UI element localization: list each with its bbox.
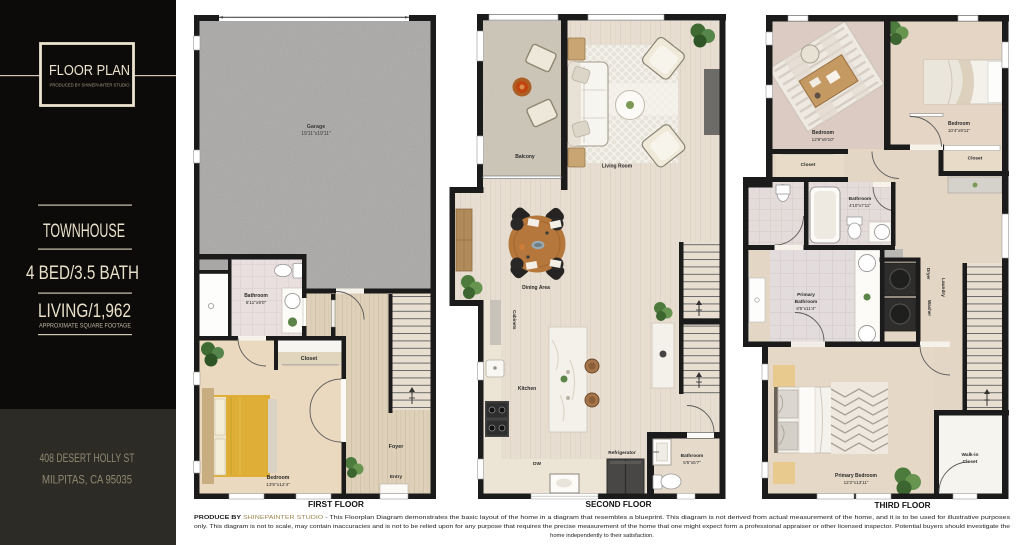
svg-text:6'11"x9'0": 6'11"x9'0": [246, 300, 267, 306]
svg-text:APPROXIMATE SQUARE FOOTAGE: APPROXIMATE SQUARE FOOTAGE: [39, 323, 132, 330]
svg-text:Walk-in: Walk-in: [962, 452, 979, 458]
svg-text:Living Room: Living Room: [602, 164, 633, 170]
svg-text:Bedroom: Bedroom: [948, 121, 971, 127]
svg-text:Closet: Closet: [801, 162, 816, 168]
svg-text:Bathroom: Bathroom: [849, 196, 872, 202]
svg-text:19'11"x19'11": 19'11"x19'11": [301, 131, 331, 137]
svg-text:Foyer: Foyer: [389, 444, 405, 450]
svg-text:Cabinets: Cabinets: [512, 310, 517, 330]
svg-text:FLOOR PLAN: FLOOR PLAN: [49, 62, 130, 79]
svg-text:Garage: Garage: [307, 124, 326, 130]
svg-text:Refrigerator: Refrigerator: [608, 450, 636, 456]
svg-text:LIVING/1,962: LIVING/1,962: [38, 301, 131, 322]
svg-text:5'5"x5'7": 5'5"x5'7": [683, 460, 701, 465]
svg-text:SECOND FLOOR: SECOND FLOOR: [586, 499, 653, 509]
svg-text:Entry: Entry: [390, 474, 403, 480]
svg-text:Bathroom: Bathroom: [795, 299, 818, 305]
svg-text:home independently to their sa: home independently to their satisfaction…: [550, 533, 654, 539]
svg-text:MILPITAS, CA 95035: MILPITAS, CA 95035: [42, 473, 132, 487]
svg-text:408 DESERT HOLLY ST: 408 DESERT HOLLY ST: [40, 451, 135, 465]
svg-text:DW: DW: [533, 461, 541, 467]
svg-text:Balcony: Balcony: [515, 154, 535, 160]
svg-text:Kitchen: Kitchen: [518, 386, 536, 392]
svg-text:4 BED/3.5 BATH: 4 BED/3.5 BATH: [26, 263, 139, 284]
svg-text:PRODUCE BY SHINEPAINTER STUDIO: PRODUCE BY SHINEPAINTER STUDIO - This Fl…: [194, 515, 1010, 521]
svg-text:13'5"x12'4": 13'5"x12'4": [266, 482, 290, 488]
svg-text:Dining Area: Dining Area: [522, 285, 550, 291]
svg-text:10'4"x9'11": 10'4"x9'11": [948, 128, 971, 133]
svg-text:Dryer: Dryer: [926, 268, 931, 280]
svg-text:Washer: Washer: [927, 300, 932, 316]
svg-text:PRODUCED BY SHINEPAINTER STUDI: PRODUCED BY SHINEPAINTER STUDIO: [50, 83, 131, 88]
svg-text:only. This diagram is not to s: only. This diagram is not to scale, may …: [194, 524, 1010, 530]
svg-text:Bedroom: Bedroom: [812, 130, 835, 136]
svg-text:4'10"x7'11": 4'10"x7'11": [849, 203, 871, 208]
svg-text:Primary: Primary: [797, 292, 815, 298]
svg-text:Laundry: Laundry: [940, 278, 946, 297]
svg-text:TOWNHOUSE: TOWNHOUSE: [43, 221, 125, 242]
svg-text:8'5"x11'4": 8'5"x11'4": [796, 306, 816, 311]
svg-text:Bedroom: Bedroom: [267, 475, 290, 481]
svg-text:Bathroom: Bathroom: [244, 293, 268, 299]
svg-text:12'2"x13'11": 12'2"x13'11": [844, 480, 869, 485]
svg-text:THIRD FLOOR: THIRD FLOOR: [875, 500, 932, 510]
svg-text:Bathroom: Bathroom: [681, 453, 704, 459]
svg-text:FIRST FLOOR: FIRST FLOOR: [308, 499, 365, 509]
svg-text:Closet: Closet: [301, 356, 318, 362]
svg-text:Primary Bedroom: Primary Bedroom: [835, 473, 878, 479]
svg-text:12'9"x9'10": 12'9"x9'10": [812, 137, 835, 142]
svg-text:Closet: Closet: [968, 156, 983, 162]
